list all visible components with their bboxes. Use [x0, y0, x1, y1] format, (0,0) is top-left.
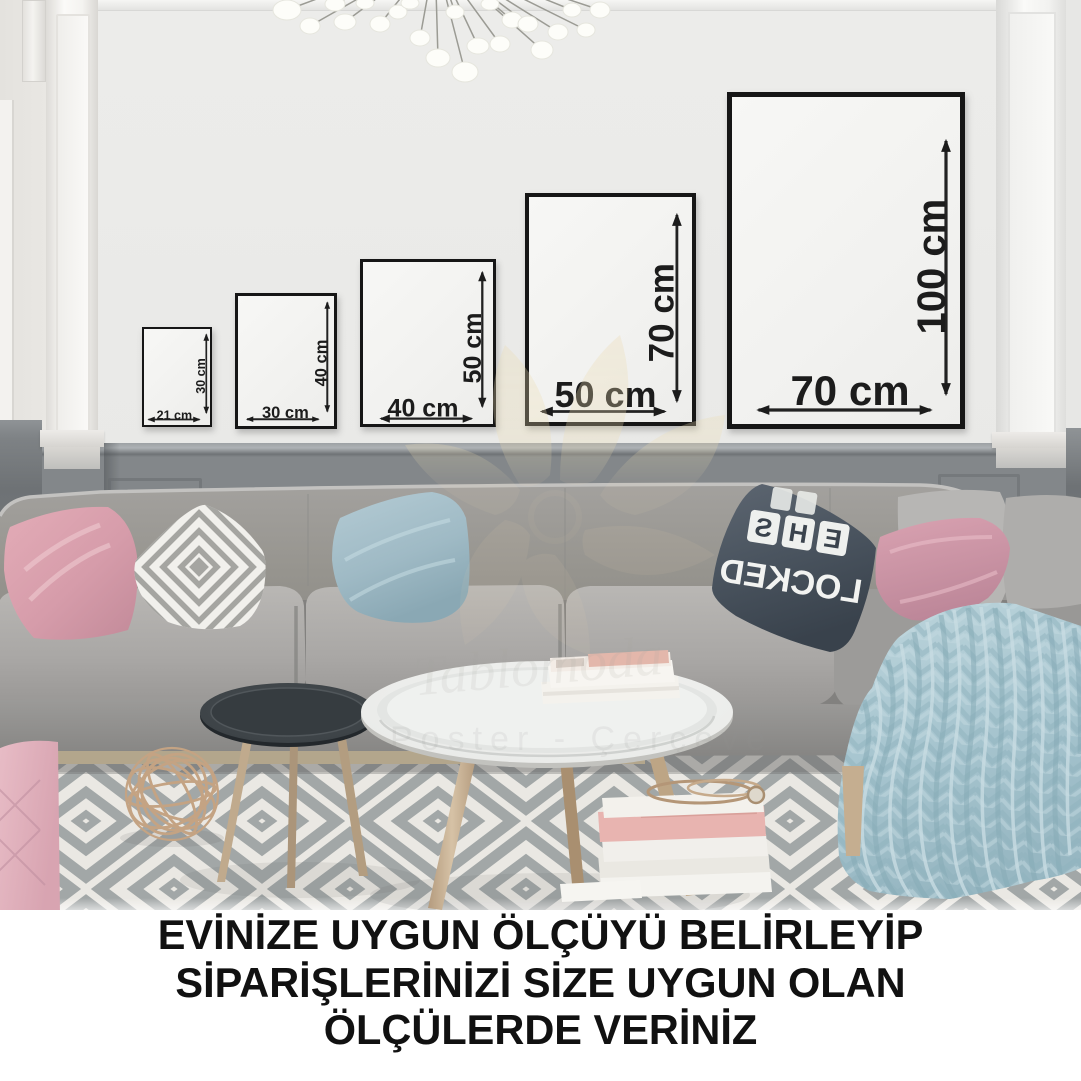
svg-text:Poster - Çerçeve: Poster - Çerçeve [390, 720, 773, 758]
svg-text:Tablomoda: Tablomoda [411, 625, 665, 709]
